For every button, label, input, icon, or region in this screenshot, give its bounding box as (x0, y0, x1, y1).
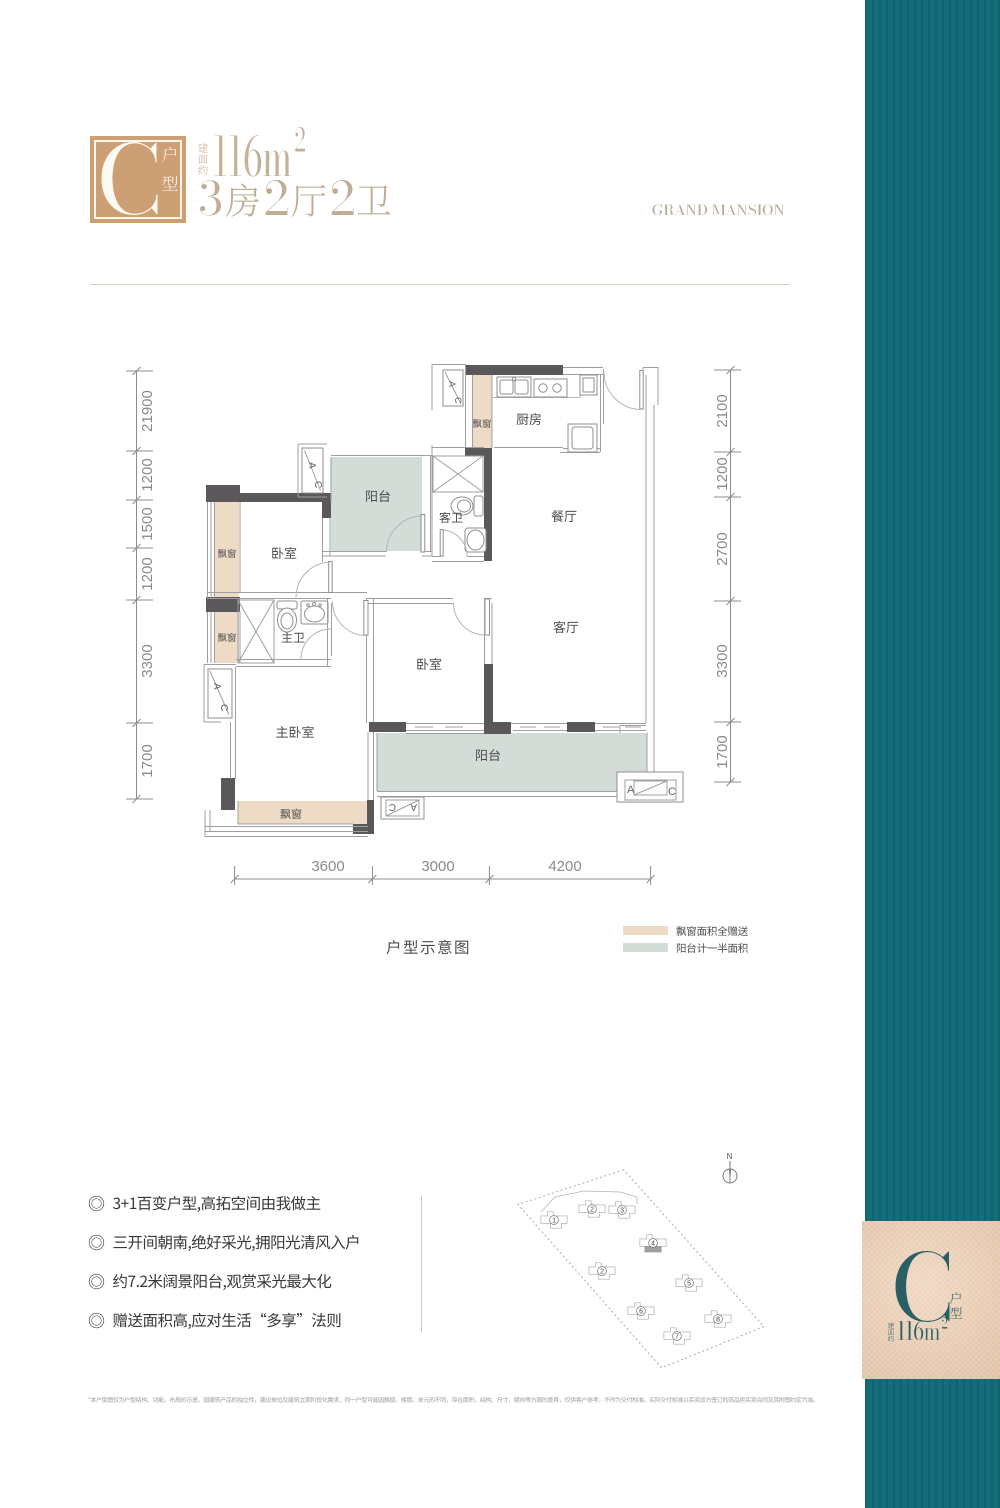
svg-text:4200: 4200 (548, 858, 581, 875)
svg-text:2100: 2100 (714, 394, 731, 427)
svg-text:飘窗: 飘窗 (217, 630, 236, 644)
svg-text:1500: 1500 (139, 507, 156, 540)
svg-text:1200: 1200 (139, 458, 156, 491)
svg-text:6: 6 (639, 1308, 643, 1315)
svg-text:C: C (312, 481, 323, 488)
svg-text:C: C (389, 801, 396, 812)
svg-text:A: A (627, 784, 635, 796)
svg-text:厨房: 厨房 (516, 409, 542, 428)
svg-text:1700: 1700 (139, 744, 156, 777)
svg-text:2: 2 (600, 1268, 604, 1275)
svg-text:主卫: 主卫 (281, 629, 305, 646)
svg-text:A: A (410, 801, 417, 812)
svg-text:A: A (211, 683, 222, 690)
svg-text:阳台计一半面积: 阳台计一半面积 (676, 941, 749, 956)
svg-text:2700: 2700 (714, 532, 731, 565)
svg-text:卧室: 卧室 (416, 654, 442, 673)
svg-text:1200: 1200 (139, 557, 156, 590)
svg-text:2: 2 (590, 1206, 594, 1213)
svg-text:1: 1 (552, 1217, 556, 1224)
svg-text:阳台: 阳台 (365, 486, 391, 505)
svg-text:4: 4 (651, 1240, 655, 1247)
svg-text:A: A (306, 462, 317, 469)
svg-text:N: N (727, 1152, 733, 1161)
svg-text:3000: 3000 (421, 858, 454, 875)
svg-text:1700: 1700 (714, 735, 731, 768)
svg-text:C: C (668, 786, 676, 798)
svg-text:8: 8 (716, 1316, 720, 1323)
svg-text:飘窗面积全赠送: 飘窗面积全赠送 (676, 924, 749, 939)
svg-text:A: A (447, 381, 457, 387)
svg-text:卧室: 卧室 (271, 543, 297, 562)
svg-text:3600: 3600 (311, 858, 344, 875)
svg-text:7: 7 (675, 1333, 679, 1340)
svg-text:阳台: 阳台 (475, 745, 501, 764)
svg-text:飘窗: 飘窗 (280, 806, 302, 822)
svg-text:C: C (453, 397, 463, 404)
svg-text:飘窗: 飘窗 (472, 416, 491, 430)
svg-text:主卧室: 主卧室 (275, 722, 314, 741)
svg-text:餐厅: 餐厅 (551, 506, 577, 525)
svg-text:户型示意图: 户型示意图 (386, 936, 471, 958)
svg-text:客卫: 客卫 (439, 509, 463, 526)
svg-text:C: C (218, 704, 229, 711)
svg-text:3300: 3300 (714, 644, 731, 677)
svg-text:飘窗: 飘窗 (217, 546, 236, 560)
svg-text:3: 3 (620, 1207, 624, 1214)
svg-text:21900: 21900 (139, 390, 156, 432)
svg-text:1200: 1200 (714, 457, 731, 490)
svg-text:5: 5 (687, 1280, 691, 1287)
svg-text:3300: 3300 (139, 644, 156, 677)
svg-text:客厅: 客厅 (553, 617, 579, 636)
